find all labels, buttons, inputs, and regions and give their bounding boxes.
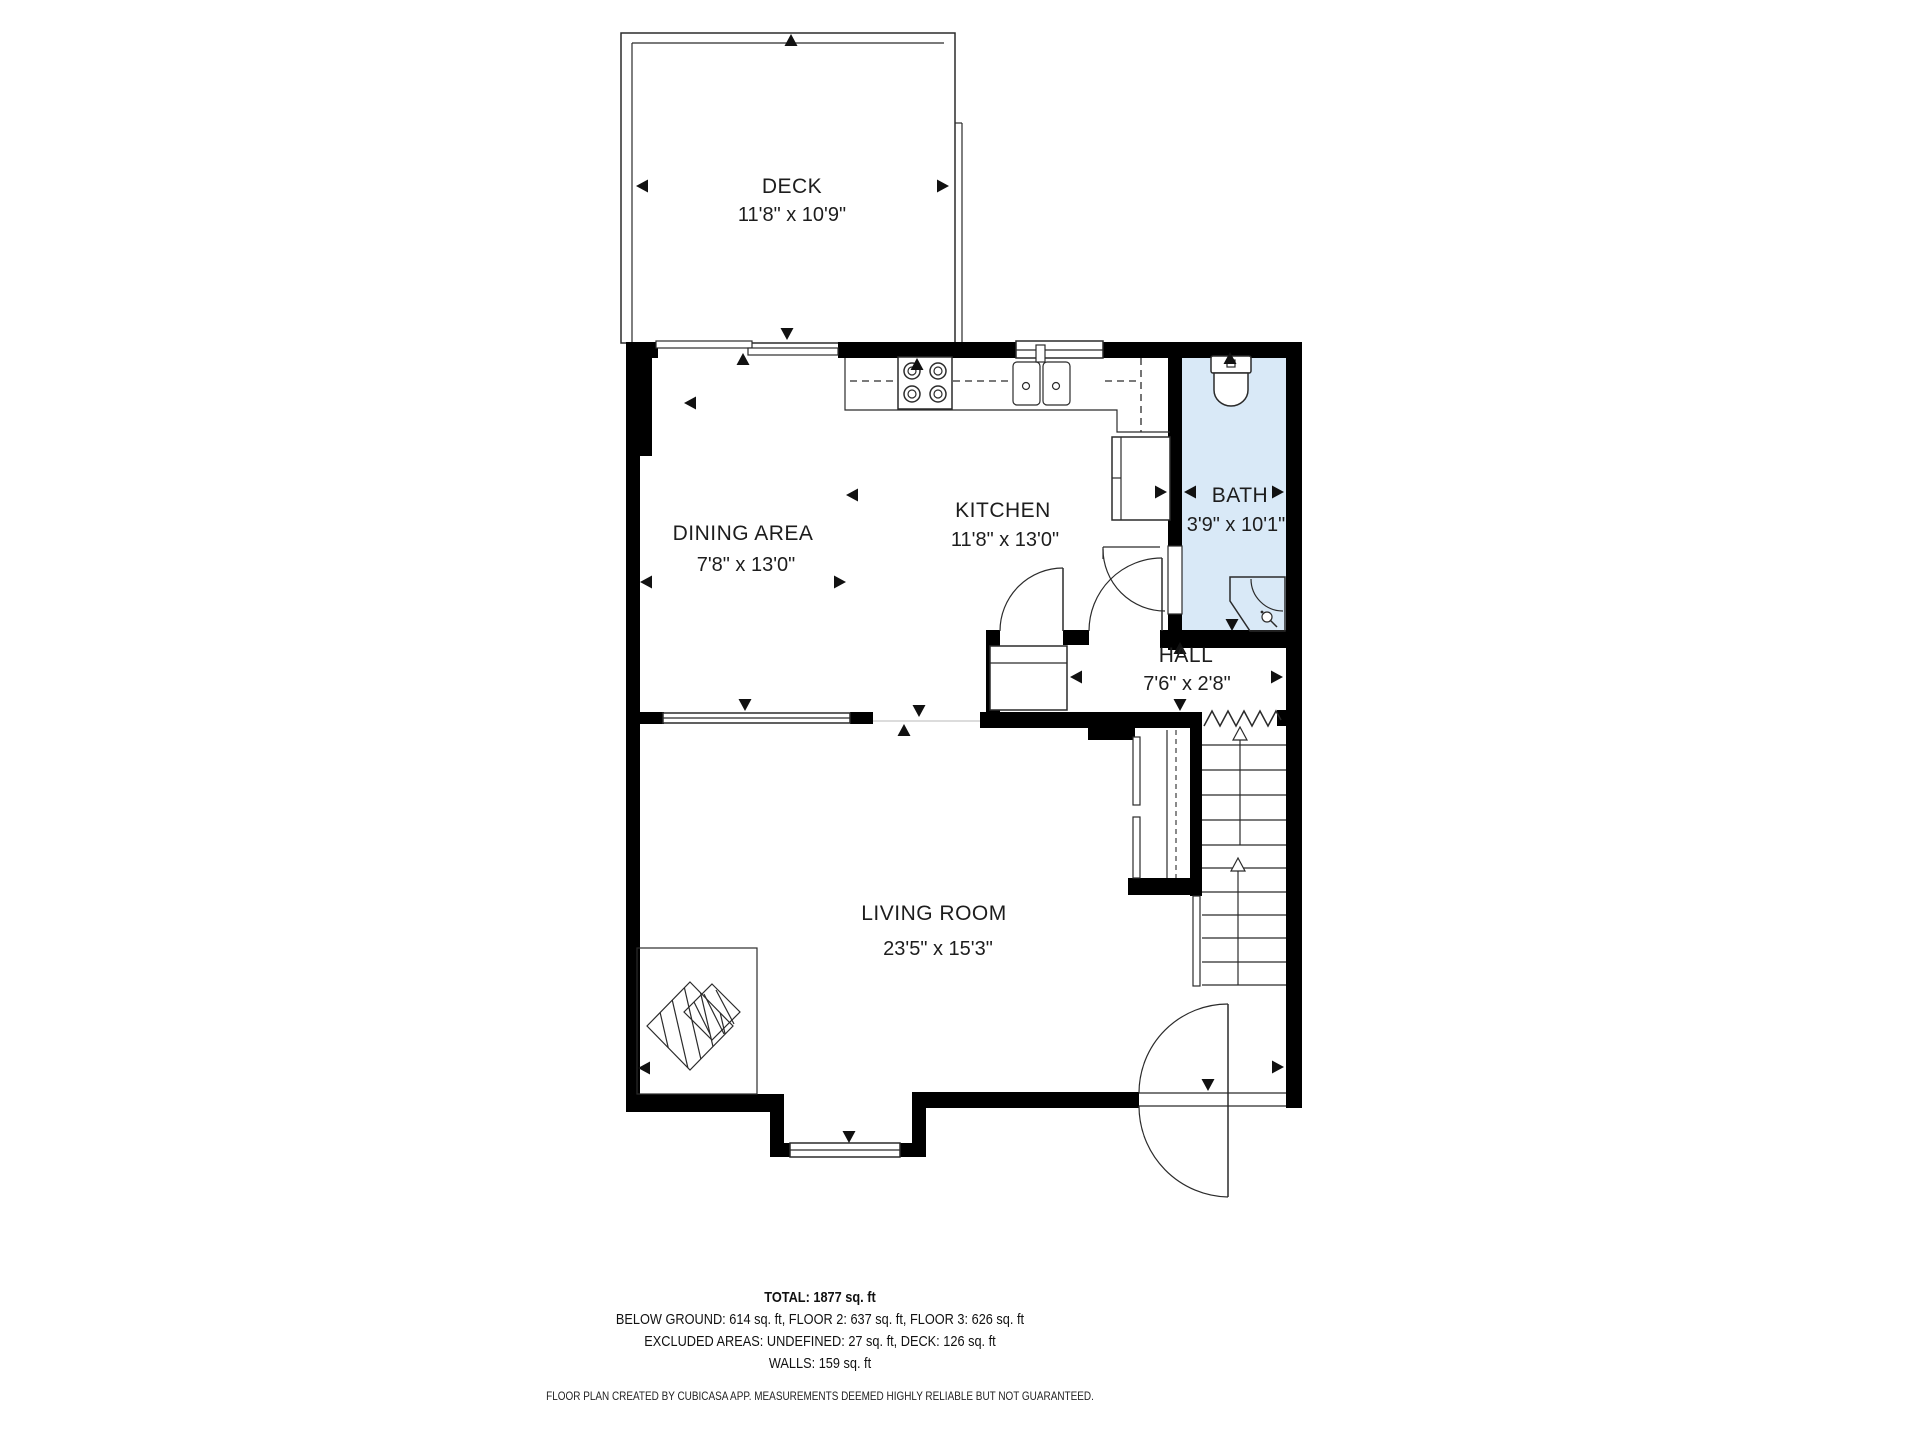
living-dims: 23'5" x 15'3" — [883, 938, 993, 960]
area-summary: TOTAL: 1877 sq. ft BELOW GROUND: 614 sq.… — [320, 1287, 1320, 1375]
kitchen-label: KITCHEN — [955, 499, 1051, 522]
bath-door — [1103, 546, 1182, 614]
hall-dims: 7'6" x 2'8" — [1143, 673, 1230, 695]
floor-areas: BELOW GROUND: 614 sq. ft, FLOOR 2: 637 s… — [395, 1309, 1245, 1331]
living-label: LIVING ROOM — [861, 902, 1007, 925]
stove-icon — [898, 357, 952, 409]
dining-dims: 7'8" x 13'0" — [697, 554, 796, 576]
under-stairs-closet — [1133, 730, 1176, 878]
stairs — [1193, 711, 1286, 986]
total-area: TOTAL: 1877 sq. ft — [395, 1287, 1245, 1309]
hall-door — [1089, 558, 1162, 631]
kitchen-counter — [845, 358, 1170, 432]
bath-label: BATH — [1212, 484, 1268, 507]
fireplace-icon — [637, 948, 757, 1094]
kitchen-dims: 11'8" x 13'0" — [951, 529, 1059, 551]
deck-dims: 11'8" x 10'9" — [738, 204, 846, 226]
walls-area: WALLS: 159 sq. ft — [395, 1353, 1245, 1375]
hall-label: HALL — [1159, 644, 1214, 667]
hall-closet — [990, 646, 1067, 710]
closet-door — [1000, 568, 1063, 631]
deck-label: DECK — [762, 175, 822, 198]
windows — [663, 341, 1103, 1157]
fridge-icon — [1112, 437, 1170, 520]
disclaimer-text: FLOOR PLAN CREATED BY CUBICASA APP. MEAS… — [405, 1389, 1235, 1403]
bath-dims: 3'9" x 10'1" — [1187, 514, 1286, 536]
floorplan-page: { "rooms": { "deck": {"label": "DECK", "… — [0, 0, 1920, 1440]
floor-plan-svg: DECK 11'8" x 10'9" DINING AREA 7'8" x 13… — [0, 0, 1920, 1440]
dining-label: DINING AREA — [673, 522, 814, 545]
excluded-areas: EXCLUDED AREAS: UNDEFINED: 27 sq. ft, DE… — [395, 1331, 1245, 1353]
entry-door — [1139, 1004, 1286, 1197]
